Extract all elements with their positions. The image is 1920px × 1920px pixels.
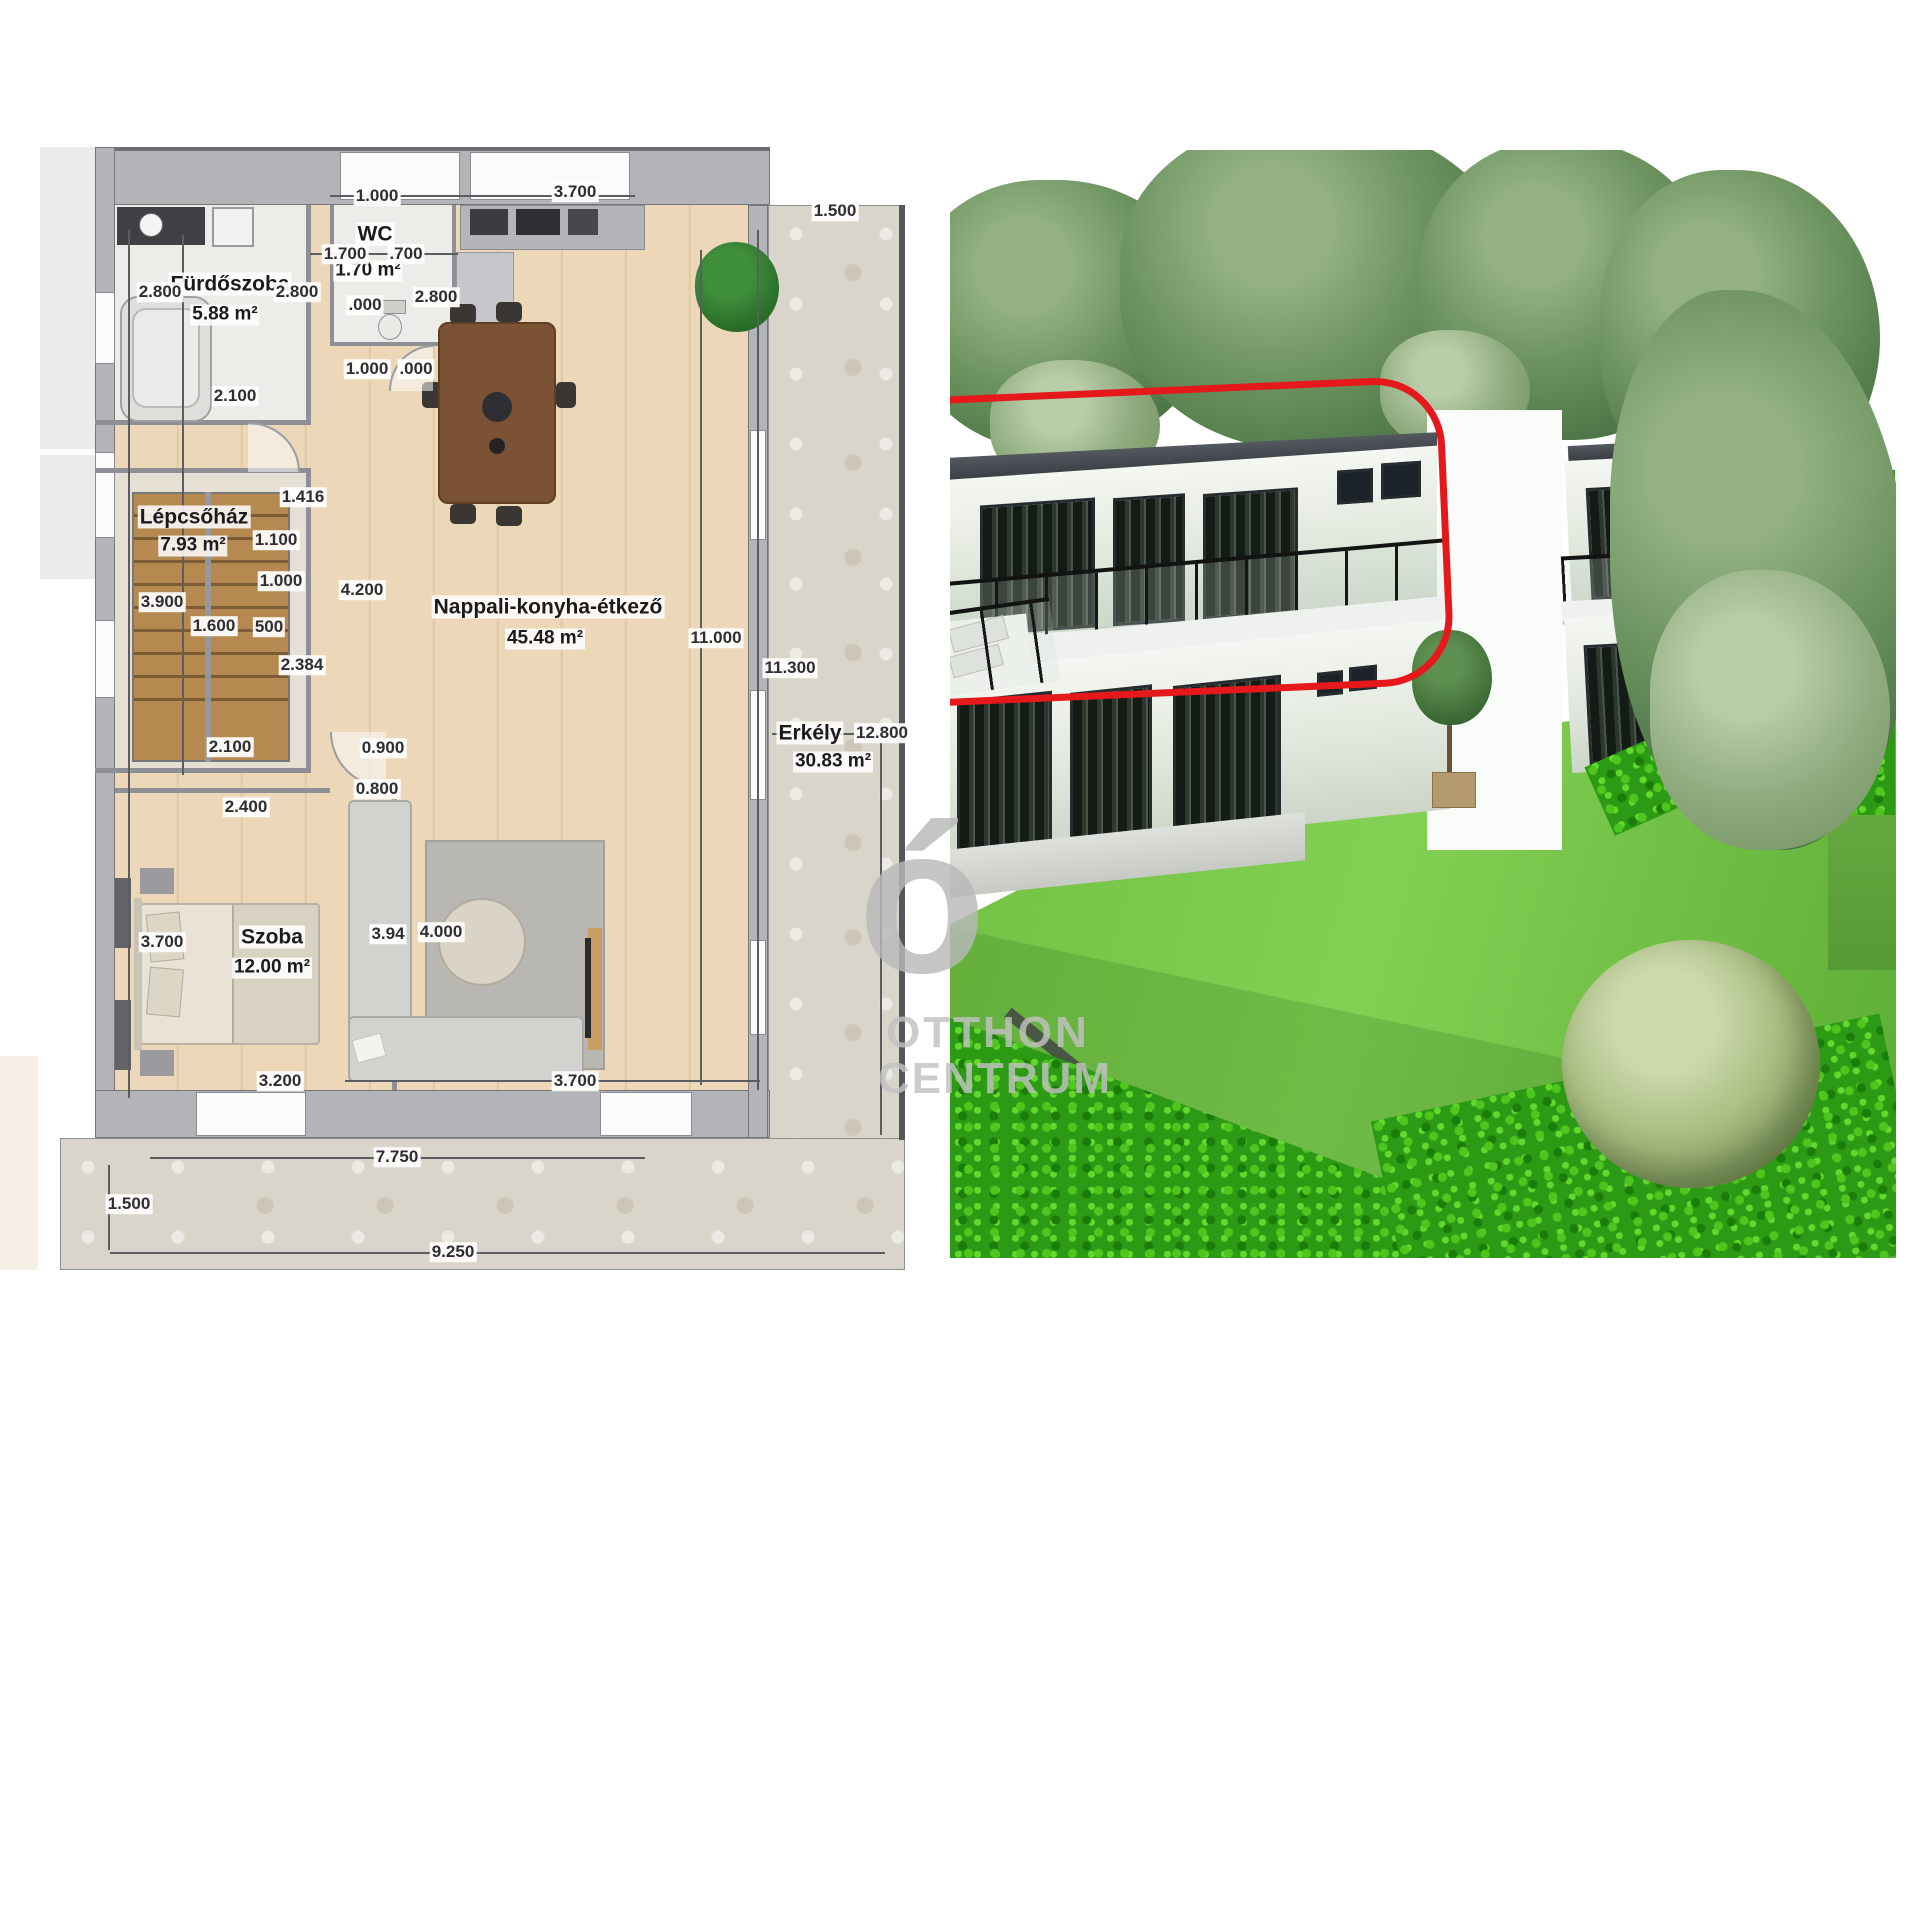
- dining-chair: [496, 302, 522, 322]
- kitchen-appliance: [568, 209, 598, 235]
- dimension-line: [128, 230, 130, 1098]
- dimension-label: 2.800: [413, 287, 460, 307]
- dimension-label: 3.94: [369, 924, 406, 944]
- dining-chair: [556, 382, 576, 408]
- room-area-label: 12.00 m²: [232, 958, 312, 979]
- planter-box: [1432, 772, 1476, 808]
- dining-chair: [450, 304, 476, 324]
- window: [196, 1092, 306, 1136]
- dimension-label: 7.750: [374, 1147, 421, 1167]
- dimension-label: 11.000: [688, 628, 743, 648]
- indoor-plant: [695, 242, 779, 332]
- dimension-label: 4.000: [418, 922, 465, 942]
- dimension-line: [700, 250, 702, 1085]
- dimension-label: 1.000: [354, 186, 401, 206]
- washing-machine: [212, 207, 254, 247]
- wall: [306, 205, 311, 425]
- bed-pillow: [146, 967, 184, 1018]
- dimension-label: 0.900: [360, 738, 407, 758]
- dimension-label: 3.700: [552, 182, 599, 202]
- dimension-label: 3.200: [257, 1071, 304, 1091]
- window-glass: [1070, 684, 1152, 847]
- listing-image: Fürdőszoba5.88 m²WC1.70 m²Lépcsőház7.93 …: [0, 0, 1920, 1920]
- wall: [115, 788, 330, 793]
- window: [470, 152, 630, 200]
- dimension-label: 0.800: [354, 779, 401, 799]
- window: [95, 452, 115, 538]
- watermark-line1: OTTHON: [886, 1008, 1090, 1058]
- dimension-label: 1.500: [812, 201, 859, 221]
- dimension-label: 2.100: [207, 737, 254, 757]
- dimension-label: 1.500: [106, 1194, 153, 1214]
- dimension-label: 3.700: [139, 932, 186, 952]
- room-name-label: Lépcsőház: [138, 505, 251, 528]
- dimension-label: 11.300: [762, 658, 817, 678]
- dimension-label: 2.100: [212, 386, 259, 406]
- coffee-table: [438, 898, 526, 986]
- dimension-label: 1.000: [344, 359, 391, 379]
- room-area-label: 7.93 m²: [158, 536, 227, 557]
- dimension-label: 12.800: [854, 723, 910, 743]
- dimension-line: [757, 230, 759, 1090]
- red-highlight-outline: [950, 375, 1455, 708]
- window: [600, 1092, 692, 1136]
- dimension-label: 2.384: [279, 655, 326, 675]
- dimension-label: 1.416: [280, 487, 327, 507]
- page-edge-strip: [0, 1056, 38, 1270]
- window-glass: [1173, 675, 1281, 836]
- plan-margin-strip: [40, 147, 96, 449]
- dimension-label: .000: [397, 359, 434, 379]
- nightstand: [140, 868, 174, 894]
- table-decor: [482, 392, 512, 422]
- room-name-label: Erkély: [776, 721, 843, 744]
- room-name-label: Nappali-konyha-étkező: [432, 595, 665, 618]
- dimension-label: 500: [253, 617, 285, 637]
- wall: [306, 468, 311, 773]
- tv: [585, 938, 591, 1038]
- dimension-label: 3.700: [552, 1071, 599, 1091]
- dimension-label: 1.100: [253, 530, 300, 550]
- stove: [516, 209, 560, 235]
- dining-chair: [450, 504, 476, 524]
- tree-canopy: [1650, 570, 1890, 850]
- dimension-line: [110, 1252, 885, 1254]
- floor-plan: Fürdőszoba5.88 m²WC1.70 m²Lépcsőház7.93 …: [0, 0, 946, 1300]
- room-area-label: 45.48 m²: [505, 629, 585, 650]
- bathroom-sink: [139, 213, 163, 237]
- bed-headboard: [134, 898, 142, 1050]
- nightstand: [140, 1050, 174, 1076]
- room-area-label: 30.83 m²: [793, 752, 873, 773]
- watermark-line2: CENTRUM: [878, 1054, 1112, 1104]
- dimension-label: 2.400: [223, 797, 270, 817]
- table-decor: [489, 438, 505, 454]
- kitchen-sink: [470, 209, 508, 235]
- dimension-label: 2.800: [274, 282, 321, 302]
- room-name-label: Szoba: [239, 925, 305, 948]
- dimension-label: 1.600: [191, 616, 238, 636]
- window: [95, 620, 115, 698]
- dimension-label: 3.900: [139, 592, 186, 612]
- room-name-label: WC: [356, 222, 395, 245]
- plan-margin-strip: [40, 455, 96, 579]
- round-bush: [1562, 940, 1820, 1188]
- dimension-label: 4.200: [339, 580, 386, 600]
- dimension-label: 9.250: [430, 1242, 477, 1262]
- watermark-logo-glyph: ó: [858, 795, 986, 1005]
- dimension-label: .700: [387, 244, 424, 264]
- dimension-label: 2.800: [137, 282, 184, 302]
- dimension-label: 1.000: [258, 571, 305, 591]
- dimension-label: .000: [346, 295, 383, 315]
- dimension-label: 1.700: [322, 244, 369, 264]
- toilet-bowl: [378, 314, 402, 340]
- room-area-label: 5.88 m²: [190, 305, 259, 326]
- window: [95, 292, 115, 364]
- dining-chair: [496, 506, 522, 526]
